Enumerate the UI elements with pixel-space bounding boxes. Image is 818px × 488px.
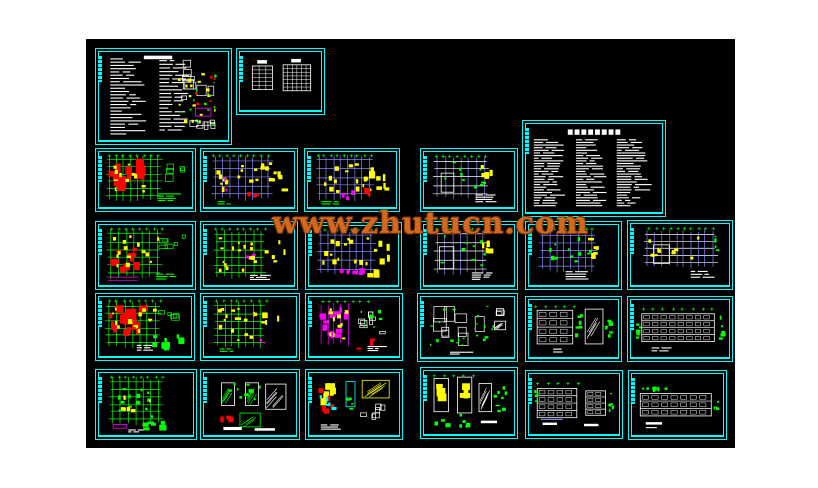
foundation-plan-sheet[interactable]: [95, 148, 196, 212]
side-elevation-sheet[interactable]: [628, 370, 727, 440]
section-details-sheet-2[interactable]: [420, 367, 518, 439]
watermark: www.zhutucn.com: [272, 209, 589, 239]
design-notes-sheet[interactable]: [522, 120, 666, 217]
sheet-drawing-content: [425, 372, 515, 436]
column-plan-sheet[interactable]: [95, 221, 196, 290]
sheet-drawing-content: [633, 375, 724, 437]
connection-details-sheet[interactable]: [417, 293, 518, 362]
sheet-drawing-content: [100, 298, 192, 358]
sheet-drawing-content: [527, 125, 663, 214]
page: www.zhutucn.com: [0, 0, 818, 488]
sheet-drawing-content: [632, 225, 730, 287]
ground-beam-plan-sheet[interactable]: [200, 148, 298, 212]
detail-sheet-2[interactable]: [305, 369, 403, 440]
sheet-drawing-content: [530, 301, 619, 359]
roof-beam-plan-sheet[interactable]: [200, 293, 300, 361]
sheet-drawing-content: [310, 374, 400, 437]
sheet-drawing-content: [422, 298, 515, 359]
sheet-drawing-content: [632, 301, 730, 359]
sheet-drawing-content: [205, 298, 297, 358]
schedule-tables-sheet[interactable]: [236, 48, 325, 115]
sheet-drawing-content: [100, 374, 194, 437]
sheet-drawing-content: [309, 153, 397, 209]
sheet-drawing-content: [100, 153, 193, 209]
sheet-drawing-content: [530, 375, 620, 436]
roof-framing-plan-sheet[interactable]: [95, 369, 197, 440]
sheet-drawing-content: [425, 153, 515, 209]
section-elevation-sheet[interactable]: [525, 370, 623, 439]
column-layout-plan-sheet[interactable]: [95, 293, 195, 361]
first-floor-framing-plan-sheet[interactable]: [420, 148, 518, 212]
sheet-drawing-content: [205, 374, 297, 437]
elevation-sheet-1[interactable]: [627, 296, 733, 362]
sheet-drawing-content: [310, 298, 400, 358]
sheet-drawing-content: [100, 226, 193, 287]
section-detail-sheet[interactable]: [525, 296, 622, 362]
floor-plan-sheet-2[interactable]: [627, 220, 733, 290]
sheet-drawing-content: [241, 53, 322, 112]
sheet-drawing-content: [205, 153, 295, 209]
first-floor-beam-plan-sheet[interactable]: [304, 148, 400, 212]
cad-drawing-canvas: www.zhutucn.com: [86, 39, 735, 448]
detail-sheet-1[interactable]: [305, 293, 403, 361]
stair-details-sheet[interactable]: [200, 369, 300, 440]
general-notes-sheet[interactable]: [95, 48, 232, 145]
sheet-drawing-content: [100, 53, 229, 142]
